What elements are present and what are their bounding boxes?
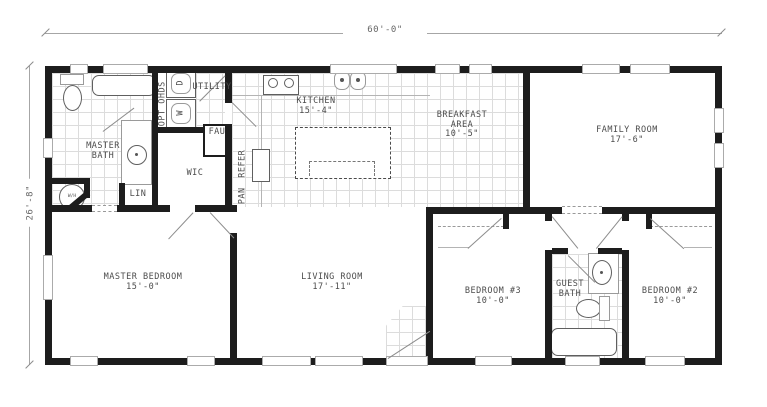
door-bedroom3-closet xyxy=(468,218,502,249)
window xyxy=(70,356,98,366)
fixture-label-opt-ohds: OPT OHDS xyxy=(158,74,168,134)
wall-bath-top-b xyxy=(598,248,622,254)
dimension-height-label: 26'-8" xyxy=(26,179,36,227)
fixture-label-pan: PAN xyxy=(238,166,248,226)
window xyxy=(187,356,215,366)
floor-plan-canvas: 60'-0" 26'-8" MASTER BATH OPT OHDS D W U… xyxy=(0,0,767,407)
bedroom3-size: 10'-0" xyxy=(443,297,543,307)
wall-exterior-bottom xyxy=(45,358,722,365)
window xyxy=(70,64,88,74)
wall-family-bottom-b xyxy=(602,207,722,214)
island-overhang xyxy=(309,161,375,176)
wall-hall-right-stub xyxy=(622,207,629,221)
room-label-bedroom-3: BEDROOM #3 10'-0" xyxy=(443,287,543,306)
room-label-breakfast: BREAKFAST AREA 10'-5" xyxy=(422,111,502,140)
sink-drain xyxy=(356,78,360,82)
burner xyxy=(284,78,294,88)
wall-master-top-b xyxy=(117,205,170,212)
sink-drain xyxy=(340,78,344,82)
tile-floor-entry xyxy=(386,306,430,358)
breakfast-size: 10'-5" xyxy=(422,130,502,140)
window xyxy=(262,356,311,366)
wall-bedroom3-closet xyxy=(503,207,509,229)
wall-master-living xyxy=(230,233,237,365)
dashed-opening-hall xyxy=(562,206,602,214)
room-label-family-room: FAMILY ROOM 17'-6" xyxy=(587,126,667,145)
room-label-living-room: LIVING ROOM 17'-11" xyxy=(282,273,382,292)
bedroom3-closet-front xyxy=(438,247,469,248)
fixture-label-washer: W xyxy=(176,103,186,123)
guest-bath-line2: BATH xyxy=(540,290,600,300)
window xyxy=(43,138,53,158)
wall-master-top-c xyxy=(195,205,237,212)
door-bedroom3 xyxy=(551,216,578,249)
room-label-bedroom-2: BEDROOM #2 10'-0" xyxy=(620,287,720,306)
wall-breakfast-family xyxy=(523,73,530,214)
dimension-width-label: 60'-0" xyxy=(343,26,427,36)
bedroom2-closet-front xyxy=(684,247,712,248)
wall-living-bedroom3 xyxy=(426,207,433,365)
room-label-lin: LIN xyxy=(124,190,152,200)
window xyxy=(565,356,600,366)
door-bedroom2-closet xyxy=(650,218,684,249)
window xyxy=(103,64,148,74)
room-label-guest-bath: GUEST BATH xyxy=(540,280,600,299)
guest-sink-drain xyxy=(600,271,603,274)
master-bathtub xyxy=(92,75,156,96)
wall-bedroom3-bath xyxy=(545,250,552,365)
wall-bath-bedroom2 xyxy=(622,250,629,365)
master-toilet-bowl xyxy=(63,85,82,111)
window xyxy=(714,108,724,133)
window xyxy=(43,255,53,300)
refrigerator-box xyxy=(252,149,270,182)
guest-toilet-tank xyxy=(599,296,610,321)
living-room-size: 17'-11" xyxy=(282,283,382,293)
window xyxy=(435,64,460,74)
window xyxy=(330,64,397,74)
wall-bath-top-a xyxy=(552,248,568,254)
window xyxy=(630,64,670,74)
master-toilet-tank xyxy=(60,74,84,85)
room-label-master-bath: MASTER BATH xyxy=(63,142,143,161)
door-bedroom2 xyxy=(596,216,623,249)
wall-exterior-left xyxy=(45,66,52,365)
bedroom2-size: 10'-0" xyxy=(620,297,720,307)
window xyxy=(714,143,724,168)
fixture-label-dryer: D xyxy=(176,73,186,93)
window xyxy=(315,356,363,366)
entry-door-opening xyxy=(386,356,428,366)
room-label-master-bedroom: MASTER BEDROOM 15'-0" xyxy=(93,273,193,292)
room-label-wic: WIC xyxy=(170,169,220,179)
window xyxy=(475,356,512,366)
bedroom3-closet-rod xyxy=(438,226,504,228)
door-master-bedroom xyxy=(210,212,235,238)
burner xyxy=(268,78,278,88)
window xyxy=(645,356,685,366)
room-label-utility: UTILITY xyxy=(186,83,238,93)
master-bath-line2: BATH xyxy=(63,152,143,162)
door-wic xyxy=(168,212,194,239)
room-label-kitchen: KITCHEN 15'-4" xyxy=(276,97,356,116)
guest-toilet-bowl xyxy=(576,299,601,318)
window xyxy=(582,64,620,74)
wall-wic-kitchen xyxy=(225,125,232,209)
master-bedroom-size: 15'-0" xyxy=(93,283,193,293)
dashed-opening-master xyxy=(92,205,117,212)
window xyxy=(469,64,492,74)
family-room-size: 17'-6" xyxy=(587,136,667,146)
kitchen-size: 15'-4" xyxy=(276,107,356,117)
wall-hall-left-stub xyxy=(545,207,552,221)
wall-family-bottom-a xyxy=(430,207,562,214)
guest-bathtub xyxy=(551,328,617,356)
fixture-label-wh: W/H xyxy=(68,194,76,199)
